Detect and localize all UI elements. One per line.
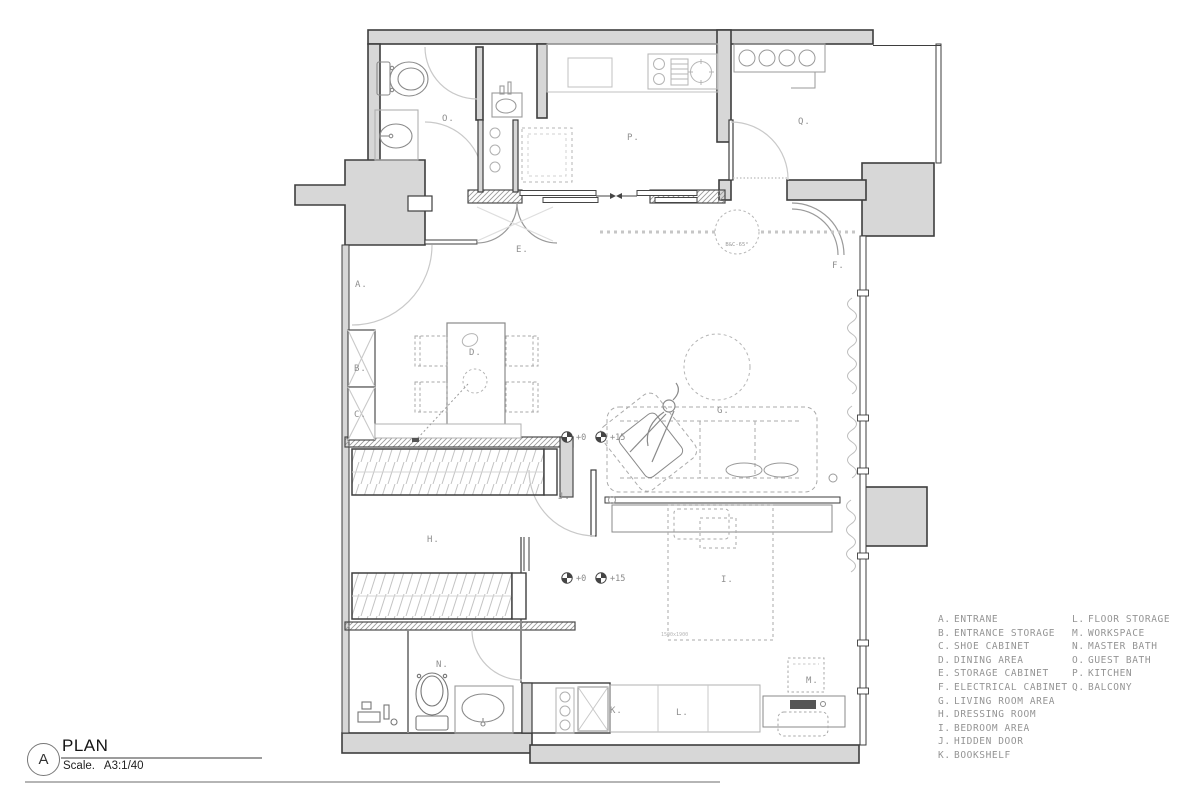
guest-bath-vanity (375, 110, 418, 160)
legend-item: Q.BALCONY (1072, 681, 1170, 695)
guest-bath-fixtures (375, 62, 522, 160)
storage-shelf-unit (478, 120, 572, 192)
legend-label: BEDROOM AREA (954, 722, 1030, 736)
door-x-pattern (477, 207, 553, 241)
legend-key: A. (938, 613, 954, 627)
legend-item: C.SHOE CABINET (938, 640, 1068, 654)
legend-key: L. (1072, 613, 1088, 627)
legend-label: ENTRANE (954, 613, 998, 627)
room-label-electrical-cabinet: F. (832, 261, 845, 271)
wall-kitchen-side (537, 44, 547, 118)
legend-item: K.BOOKSHELF (938, 749, 1068, 763)
door-arc-storage-right (517, 203, 557, 243)
door-arc-electrical-outer (792, 203, 844, 255)
legend-label: STORAGE CABINET (954, 667, 1049, 681)
door-arc-storage-left (477, 203, 517, 243)
window-wall-right (860, 236, 866, 745)
storage-row (522, 658, 845, 736)
window-wall-balcony (936, 44, 941, 163)
title-underline (61, 757, 262, 759)
legend-item: J.HIDDEN DOOR (938, 735, 1068, 749)
room-label-storage-cabinet: E. (516, 245, 529, 255)
legend-key: I. (938, 722, 954, 736)
room-label-kitchen: P. (627, 133, 640, 143)
wall-piece-bedroom (560, 437, 573, 497)
legend-item: A.ENTRANE (938, 613, 1068, 627)
wall-top (368, 30, 873, 44)
legend-item: F.ELECTRICAL CABINET (938, 681, 1068, 695)
legend-key: N. (1072, 640, 1088, 654)
legend-key: H. (938, 708, 954, 722)
room-label-entrance: A. (355, 280, 368, 290)
legend-label: BOOKSHELF (954, 749, 1011, 763)
legend-key: M. (1072, 627, 1088, 641)
sofa-pillow-1 (726, 463, 762, 477)
level-value: +15 (610, 574, 625, 584)
legend-item: D.DINING AREA (938, 654, 1068, 668)
kitchen-stove (648, 54, 717, 89)
master-bath-toilet (416, 673, 448, 730)
floor-plan-sheet: B&C-65° (0, 0, 1200, 785)
legend-label: DINING AREA (954, 654, 1024, 668)
drawing-title: PLAN (62, 736, 108, 756)
door-leaf-hidden (591, 470, 596, 536)
door-note: B&C-65° (725, 242, 748, 248)
legend-label: KITCHEN (1088, 667, 1132, 681)
balcony-equipment (734, 44, 825, 88)
kitchen-sink (568, 58, 612, 87)
level-value: +15 (610, 433, 625, 443)
bed-dimension: 1500x1900 (661, 632, 688, 638)
wall-left-thin (342, 245, 349, 733)
door-arc-master-bath (472, 630, 522, 680)
legend-label: MASTER BATH (1088, 640, 1158, 654)
door-leaf-entrance (408, 196, 432, 211)
room-label-shoe-cabinet: C. (354, 410, 367, 420)
bed (668, 505, 773, 640)
door-arc-guest-bath (425, 122, 483, 180)
legend-key: O. (1072, 654, 1088, 668)
legend-label: ELECTRICAL CABINET (954, 681, 1068, 695)
legend-item: N.MASTER BATH (1072, 640, 1170, 654)
legend-label: BALCONY (1088, 681, 1132, 695)
plant-dashed (684, 334, 750, 400)
door-leaf-balcony (729, 120, 733, 180)
legend-item: M.WORKSPACE (1072, 627, 1170, 641)
legend-key: K. (938, 749, 954, 763)
workspace-desk (763, 658, 845, 736)
legend-label: SHOE CABINET (954, 640, 1030, 654)
legend-key: G. (938, 695, 954, 709)
legend-key: J. (938, 735, 954, 749)
room-label-balcony: Q. (798, 117, 811, 127)
legend-key: E. (938, 667, 954, 681)
legend-item: E.STORAGE CABINET (938, 667, 1068, 681)
legend-item: P.KITCHEN (1072, 667, 1170, 681)
wall-dressing-bath-divider (345, 622, 575, 630)
wardrobes (352, 449, 557, 619)
legend-label: LIVING ROOM AREA (954, 695, 1055, 709)
wall-bottom-right (530, 745, 859, 763)
sheet-border-line (25, 781, 720, 783)
legend-label: GUEST BATH (1088, 654, 1151, 668)
sofa-pillow-2 (764, 463, 798, 477)
column-right-top (862, 163, 934, 236)
legend-item: G.LIVING ROOM AREA (938, 695, 1068, 709)
legend-item: I.BEDROOM AREA (938, 722, 1068, 736)
desk-chair (778, 712, 828, 736)
curtains (847, 298, 857, 572)
room-label-dressing: H. (427, 535, 440, 545)
drawing-scale: Scale. A3:1/40 (63, 760, 144, 772)
room-label-master-bath: N. (436, 660, 449, 670)
kitchen-counter (547, 44, 718, 92)
master-bath-accessories (358, 702, 397, 725)
room-label-hidden-door: J. (558, 492, 571, 502)
legend-label: ENTRANCE STORAGE (954, 627, 1055, 641)
guest-bath-basin-2 (492, 82, 522, 117)
wall-under-guest-bath (425, 240, 477, 244)
room-label-workspace: M. (806, 676, 819, 686)
hidden-door-track (605, 497, 840, 503)
legend-key: P. (1072, 667, 1088, 681)
door-arc-balcony (731, 122, 788, 180)
legend-column-1: A.ENTRANE B.ENTRANCE STORAGE C.SHOE CABI… (938, 613, 1068, 763)
bedroom-furniture: 1500x1900 (605, 497, 840, 641)
room-label-bedroom: I. (721, 575, 734, 585)
curtain-pull (829, 474, 837, 482)
level-value: +0 (576, 433, 586, 443)
room-label-guest-bath: O. (442, 114, 455, 124)
legend-key: C. (938, 640, 954, 654)
dining-table (447, 323, 505, 426)
guest-bath-toilet (377, 62, 428, 96)
legend-item: B.ENTRANCE STORAGE (938, 627, 1068, 641)
level-value: +0 (576, 574, 586, 584)
room-label-dining: D. (469, 348, 482, 358)
sheet-letter: A (38, 751, 48, 768)
sliding-door-left (520, 191, 616, 203)
dining-set (375, 323, 538, 442)
master-bath-vanity (455, 686, 513, 733)
wall-bath-divider (476, 47, 483, 120)
entrance-cabinets (348, 330, 375, 440)
legend-label: HIDDEN DOOR (954, 735, 1024, 749)
legend-column-2: L.FLOOR STORAGE M.WORKSPACE N.MASTER BAT… (1072, 613, 1170, 695)
room-label-bookshelf: K. (610, 706, 623, 716)
master-bath-fixtures (358, 673, 513, 733)
structural-walls (295, 30, 934, 763)
wall-bottom-left (342, 733, 532, 753)
legend-label: DRESSING ROOM (954, 708, 1036, 722)
legend-item: H.DRESSING ROOM (938, 708, 1068, 722)
legend-key: Q. (1072, 681, 1088, 695)
bookshelf (522, 683, 610, 733)
fridge-dashed (522, 128, 572, 182)
legend-key: F. (938, 681, 954, 695)
legend-key: B. (938, 627, 954, 641)
column-right-mid (861, 487, 927, 546)
sheet-reference-bubble: A (27, 743, 60, 776)
legend-key: D. (938, 654, 954, 668)
keyboard (790, 700, 816, 709)
room-label-floor-storage: L. (676, 708, 689, 718)
wall-balcony-front-right (787, 180, 866, 200)
dining-bench (375, 424, 521, 438)
room-label-entrance-storage: B. (354, 364, 367, 374)
legend-item: L.FLOOR STORAGE (1072, 613, 1170, 627)
legend-item: O.GUEST BATH (1072, 654, 1170, 668)
column-left (295, 160, 425, 245)
legend-label: WORKSPACE (1088, 627, 1145, 641)
side-chair (788, 658, 824, 692)
legend-label: FLOOR STORAGE (1088, 613, 1170, 627)
room-label-living: G. (717, 406, 730, 416)
door-arc-wc (425, 47, 477, 99)
